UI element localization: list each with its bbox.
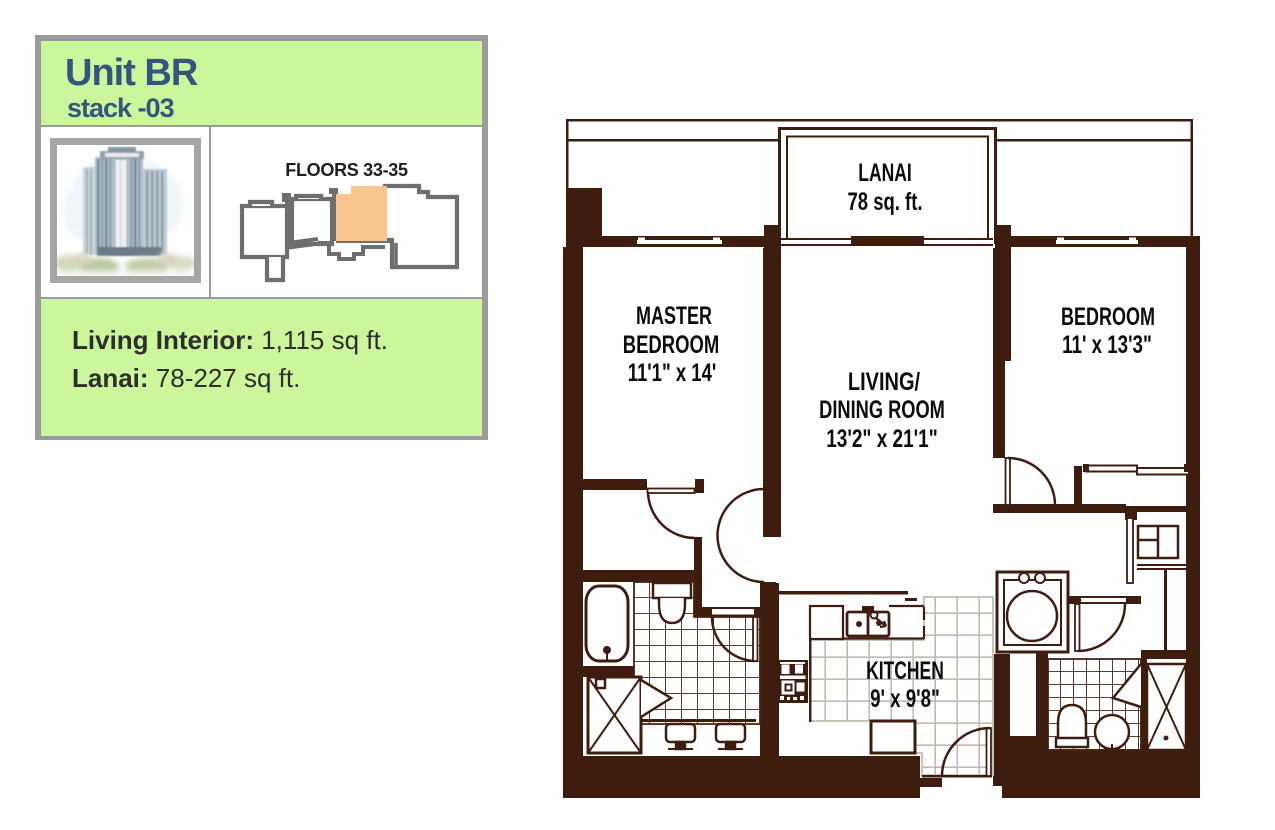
svg-text:LIVING/: LIVING/ <box>848 368 921 396</box>
svg-text:BEDROOM: BEDROOM <box>1061 302 1155 331</box>
svg-text:11'1" x 14': 11'1" x 14' <box>628 358 717 386</box>
svg-text:11' x 13'3": 11' x 13'3" <box>1062 330 1152 358</box>
svg-text:BEDROOM: BEDROOM <box>623 330 720 358</box>
svg-text:LANAI: LANAI <box>858 158 911 187</box>
svg-text:KITCHEN: KITCHEN <box>866 656 944 685</box>
svg-text:9' x 9'8": 9' x 9'8" <box>870 684 940 712</box>
svg-text:DINING ROOM: DINING ROOM <box>819 395 945 424</box>
svg-text:78 sq. ft.: 78 sq. ft. <box>847 187 922 215</box>
svg-text:MASTER: MASTER <box>636 301 712 330</box>
svg-text:13'2" x 21'1": 13'2" x 21'1" <box>826 424 938 452</box>
